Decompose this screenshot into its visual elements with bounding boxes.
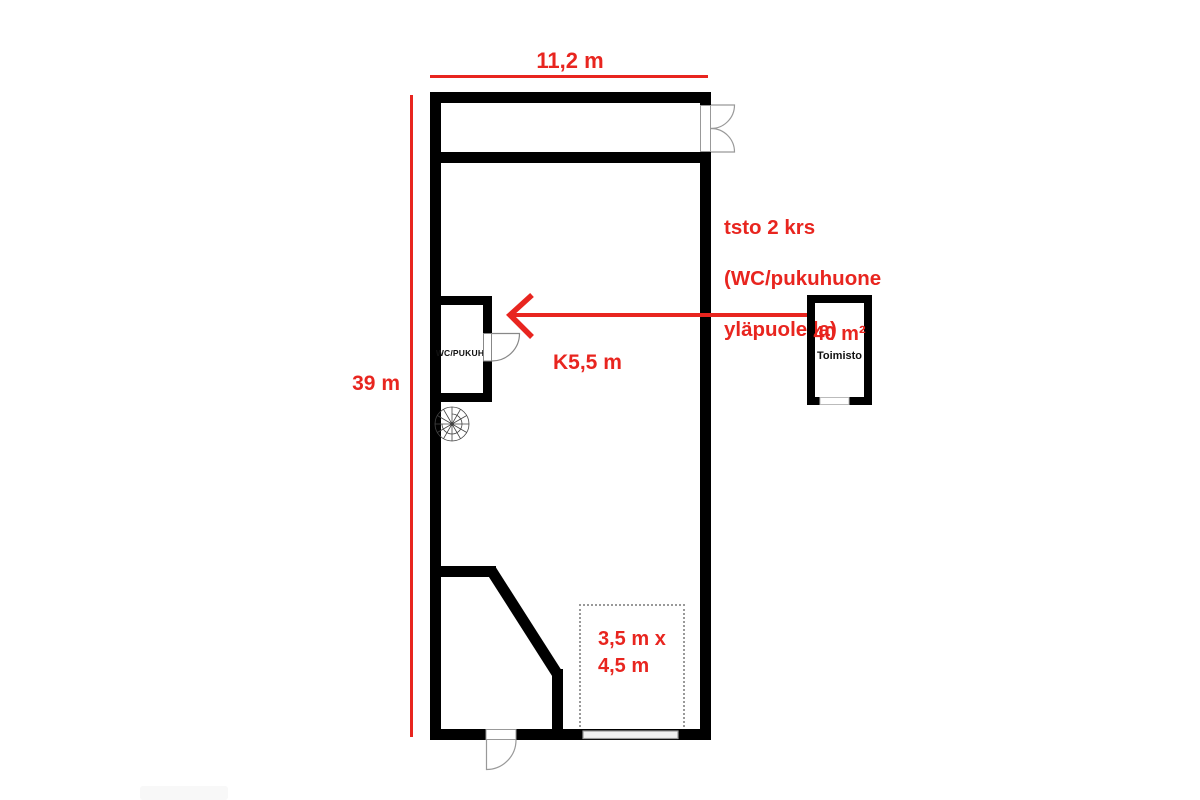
wall-bottom — [430, 729, 711, 740]
width-dimension-label: 11,2 m — [500, 48, 640, 74]
wc-room-wall-bottom — [430, 393, 492, 402]
wc-door-icon — [484, 334, 520, 362]
ceiling-height-label: K5,5 m — [553, 351, 622, 375]
office-wall-bottom — [807, 397, 872, 405]
wc-room-label: WC/PUKUH — [434, 348, 486, 358]
wall-top — [430, 92, 711, 103]
height-dimension-label: 39 m — [340, 372, 400, 396]
double-door-icon — [701, 105, 735, 152]
height-dimension-line — [410, 95, 413, 737]
slot-dim-line-1: 3,5 m x — [598, 628, 666, 650]
corner-room-wall-diagonal — [491, 570, 558, 675]
watermark — [140, 786, 228, 800]
floor-plan: 11,2 m 39 m K5,5 m tsto 2 krs (WC/pukuhu… — [0, 0, 1200, 800]
office-area-label: 40 m² — [808, 323, 871, 346]
wall-right-lower — [700, 153, 711, 740]
office-name-label: Toimisto — [808, 350, 871, 362]
slot-dim-line-2: 4,5 m — [598, 655, 649, 677]
wall-left — [430, 92, 441, 740]
note-line-1: tsto 2 krs — [724, 216, 815, 239]
wall-right-upper — [700, 92, 711, 105]
wc-room-wall-right-upper — [483, 296, 492, 334]
width-dimension-line — [430, 75, 708, 78]
corner-room-wall-right — [552, 669, 563, 729]
note-line-2: (WC/pukuhuone — [724, 267, 881, 290]
wall-interior-top-strip — [430, 152, 711, 163]
corner-room-wall-top — [430, 566, 496, 577]
office-wall-top — [807, 295, 872, 303]
marked-area-dimension-label: 3,5 m x 4,5 m — [598, 626, 666, 680]
